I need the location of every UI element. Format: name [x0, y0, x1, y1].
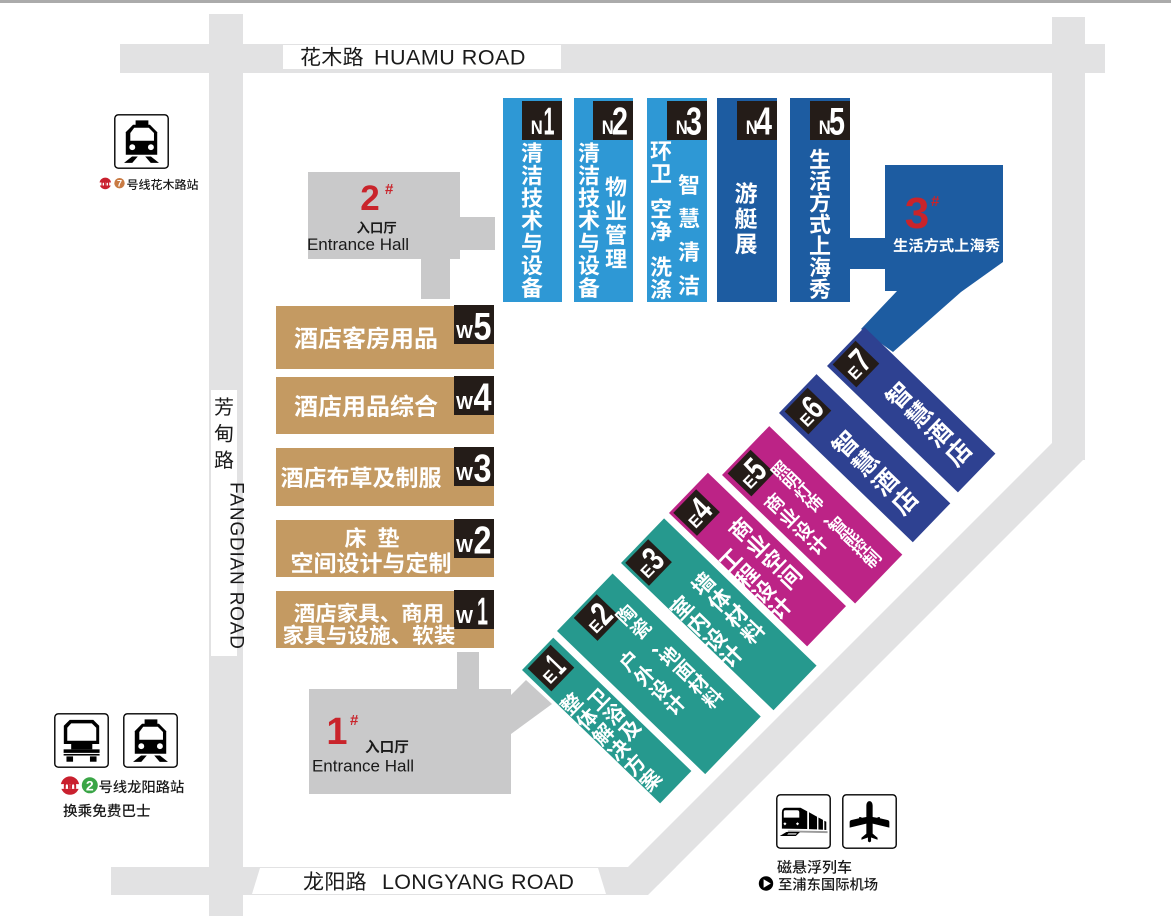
svg-text:2: 2: [86, 777, 94, 793]
svg-text:#: #: [350, 712, 359, 729]
svg-text:4: 4: [756, 101, 772, 144]
svg-text:1: 1: [544, 101, 555, 144]
svg-text:N: N: [531, 118, 543, 139]
svg-text:5: 5: [829, 101, 845, 144]
svg-text:3: 3: [905, 189, 929, 238]
svg-text:W: W: [456, 536, 473, 556]
svg-text:4: 4: [474, 377, 492, 420]
svg-text:2: 2: [474, 520, 492, 563]
svg-text:HUAMU ROAD: HUAMU ROAD: [374, 46, 526, 70]
svg-text:Entrance Hall: Entrance Hall: [312, 757, 414, 776]
svg-text:W: W: [456, 464, 473, 484]
svg-text:1: 1: [326, 711, 347, 753]
svg-text:7: 7: [117, 178, 122, 188]
svg-text:LONGYANG ROAD: LONGYANG ROAD: [382, 870, 574, 894]
svg-text:3: 3: [474, 448, 492, 491]
svg-text:W: W: [456, 607, 473, 627]
svg-text:W: W: [456, 393, 473, 413]
svg-text:#: #: [385, 181, 394, 198]
svg-text:1: 1: [477, 591, 488, 634]
svg-text:3: 3: [686, 101, 702, 144]
svg-text:#: #: [931, 193, 940, 210]
svg-text:W: W: [456, 322, 473, 342]
svg-text:2: 2: [360, 179, 379, 218]
svg-text:Entrance Hall: Entrance Hall: [307, 235, 409, 254]
svg-text:5: 5: [474, 306, 492, 349]
svg-text:FANGDIAN ROAD: FANGDIAN ROAD: [226, 482, 247, 650]
svg-text:2: 2: [612, 101, 628, 144]
